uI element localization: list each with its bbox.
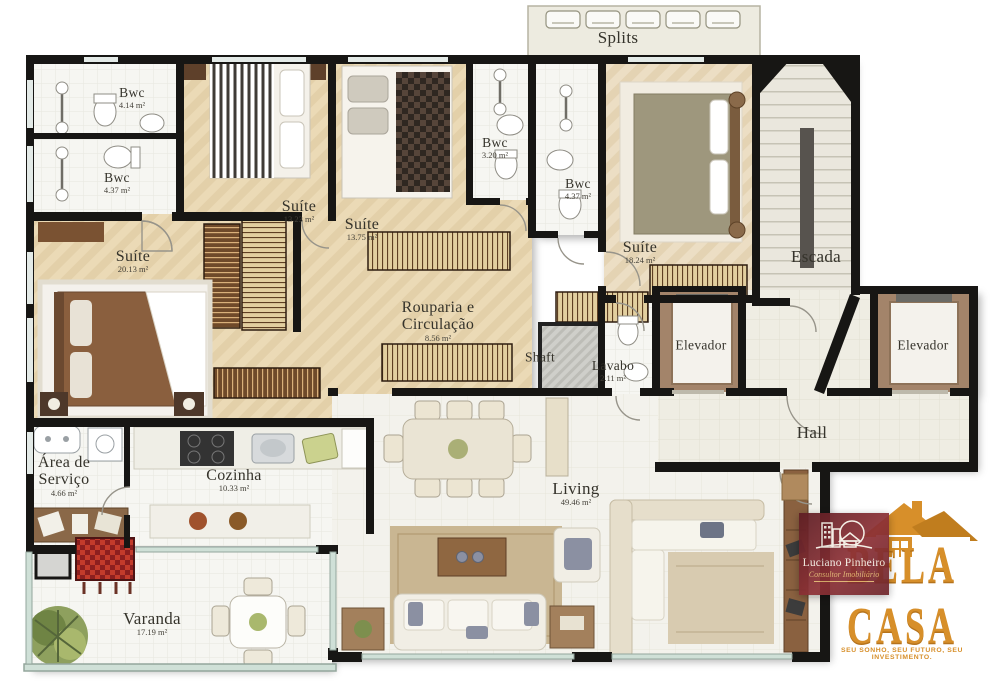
shaft-box: [540, 324, 602, 394]
stove-icon: [180, 431, 234, 466]
luciano-pinheiro-name: Luciano Pinheiro: [799, 557, 889, 569]
splits-terrace: [528, 6, 760, 56]
luciano-pinheiro-subtitle: Consultor Imobiliário: [799, 570, 889, 579]
washer-icon: [88, 428, 122, 461]
ac-unit-icons: [546, 11, 740, 28]
floor-plan-image: Bwc4.14 m² Bwc4.37 m² Suíte13.23 m² Suít…: [0, 0, 1000, 696]
entry-doormat: [782, 474, 808, 500]
logo-flourish: [814, 581, 874, 582]
console-table-icon: [546, 398, 568, 476]
bed-icon: [342, 66, 452, 198]
buildings-icon: [814, 517, 874, 551]
bed-icon: [620, 82, 745, 242]
laundry-tub-icon: [34, 426, 80, 453]
fridge-icon: [342, 429, 370, 468]
luciano-pinheiro-logo: Luciano Pinheiro Consultor Imobiliário: [799, 513, 889, 595]
